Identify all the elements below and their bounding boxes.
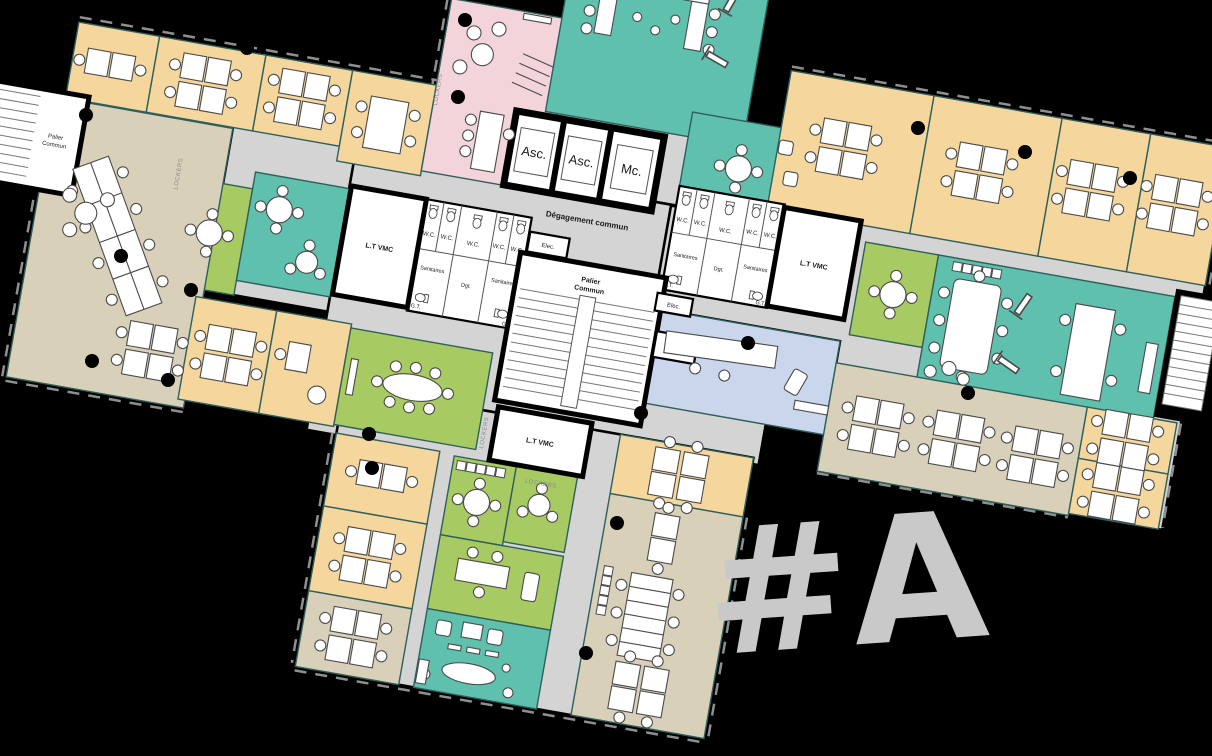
floor-plan-svg: Asc. Asc. Mc. Dégagement commun W.C. W.C…	[0, 0, 1212, 756]
floor-plan-canvas: Asc. Asc. Mc. Dégagement commun W.C. W.C…	[0, 0, 1212, 756]
watermark-hash-a: #A	[698, 474, 994, 696]
room-teal-west	[236, 172, 349, 297]
building: Asc. Asc. Mc. Dégagement commun W.C. W.C…	[0, 0, 1212, 756]
